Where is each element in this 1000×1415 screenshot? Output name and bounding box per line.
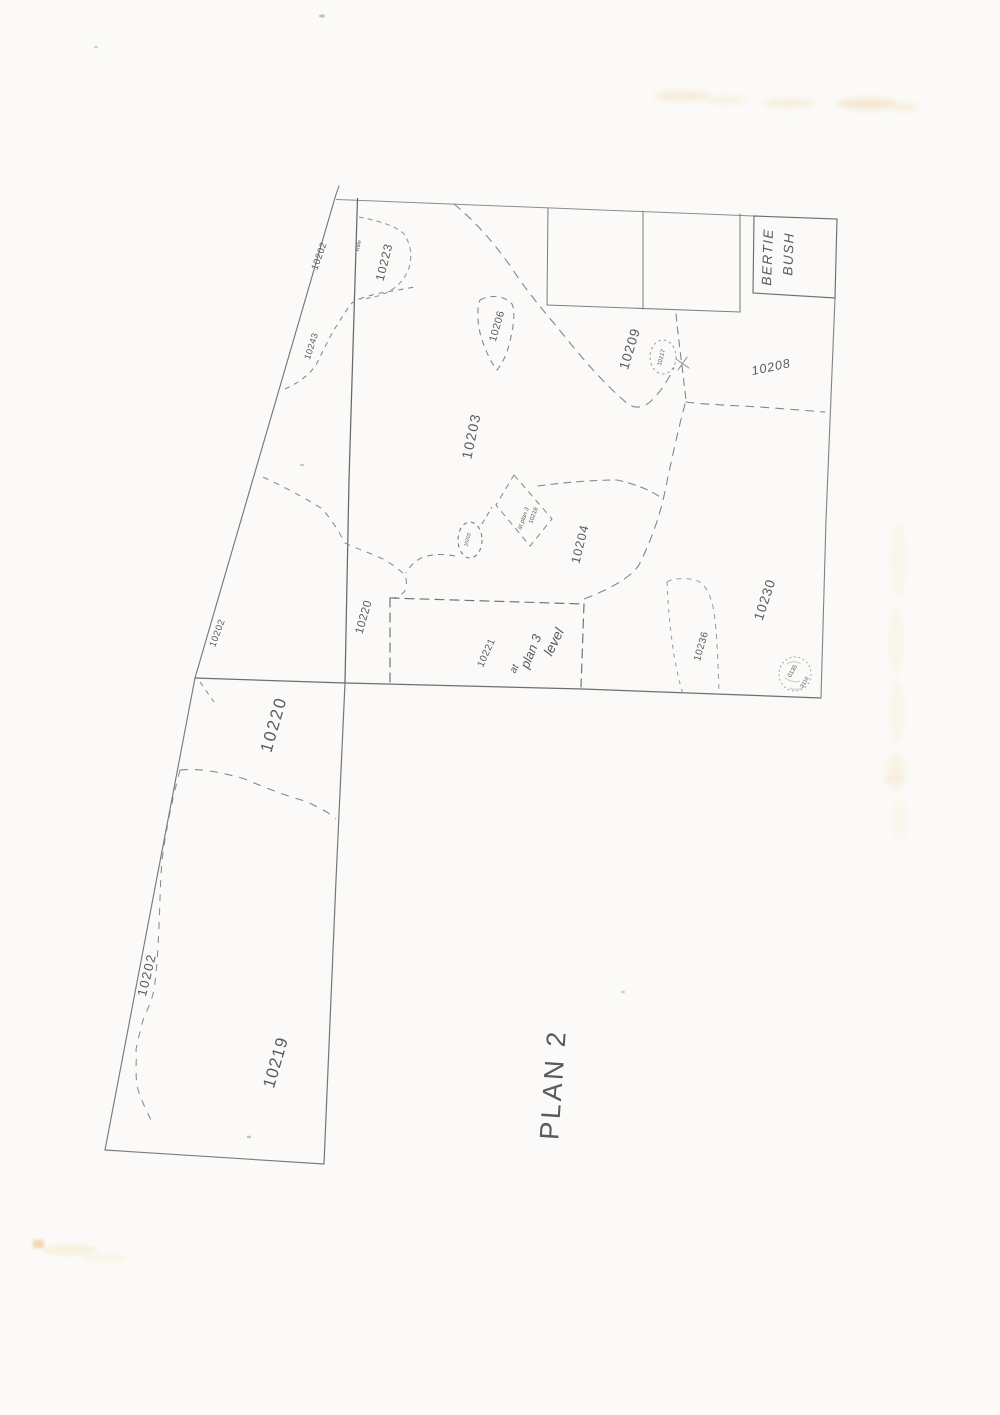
svg-text:BUSH: BUSH bbox=[780, 232, 797, 276]
svg-text:BERTIE: BERTIE bbox=[759, 228, 776, 286]
